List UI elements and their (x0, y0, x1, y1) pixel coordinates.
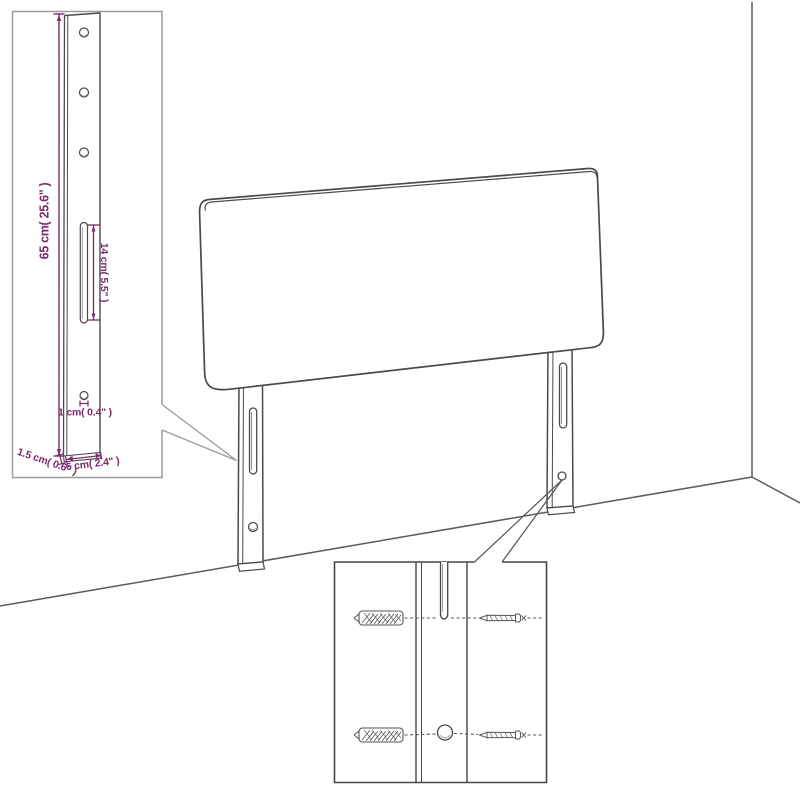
right-leg-slot (560, 363, 567, 428)
right-leg-bottom-face (547, 506, 575, 515)
dimension-slot-length: 14 cm( 5.5" ) (88, 225, 111, 320)
mounting-detail-board (416, 562, 467, 783)
screw-icon (480, 731, 527, 739)
mounting-detail-inset (335, 562, 547, 783)
screw-icon (480, 614, 527, 622)
wall-plug-anchor-icon (354, 611, 403, 625)
wall-plug-anchor-icon (354, 728, 403, 742)
leg-detail-inset: 65 cm( 25.6" ) 14 cm( 5.5" ) 1 cm( 0.4" … (13, 12, 163, 478)
hole-diameter-label: 1 cm( 0.4" ) (58, 407, 112, 419)
dimension-hole-diameter: 1 cm( 0.4" ) (58, 401, 112, 419)
headboard-panel-outline (200, 168, 604, 389)
floor-line-right (752, 477, 800, 503)
leg-detail-slot (80, 223, 87, 324)
leg-height-label: 65 cm( 25.6" ) (38, 182, 52, 259)
left-leg-slot (250, 408, 257, 474)
mounting-detail-slot (441, 562, 448, 619)
right-leg (547, 342, 575, 515)
callout-wedge-right-leg (475, 480, 563, 562)
leg-detail-hole-3 (80, 148, 89, 157)
dimension-leg-height: 65 cm( 25.6" ) (38, 14, 65, 456)
slot-length-label: 14 cm( 5.5" ) (98, 243, 110, 303)
floor-line-left (0, 477, 752, 606)
diagram-canvas: 65 cm( 25.6" ) 14 cm( 5.5" ) 1 cm( 0.4" … (0, 0, 800, 800)
leg-detail-hole-1 (80, 28, 89, 37)
left-leg-bottom-face (238, 562, 265, 571)
callout-wedge-left-leg (162, 405, 237, 461)
leg-detail-board (64, 13, 102, 462)
left-leg (238, 378, 265, 571)
leg-detail-hole-2 (80, 88, 89, 97)
right-leg-hole (558, 472, 566, 480)
headboard-panel (200, 168, 604, 389)
headboard-assembly-diagram: 65 cm( 25.6" ) 14 cm( 5.5" ) 1 cm( 0.4" … (0, 0, 800, 800)
